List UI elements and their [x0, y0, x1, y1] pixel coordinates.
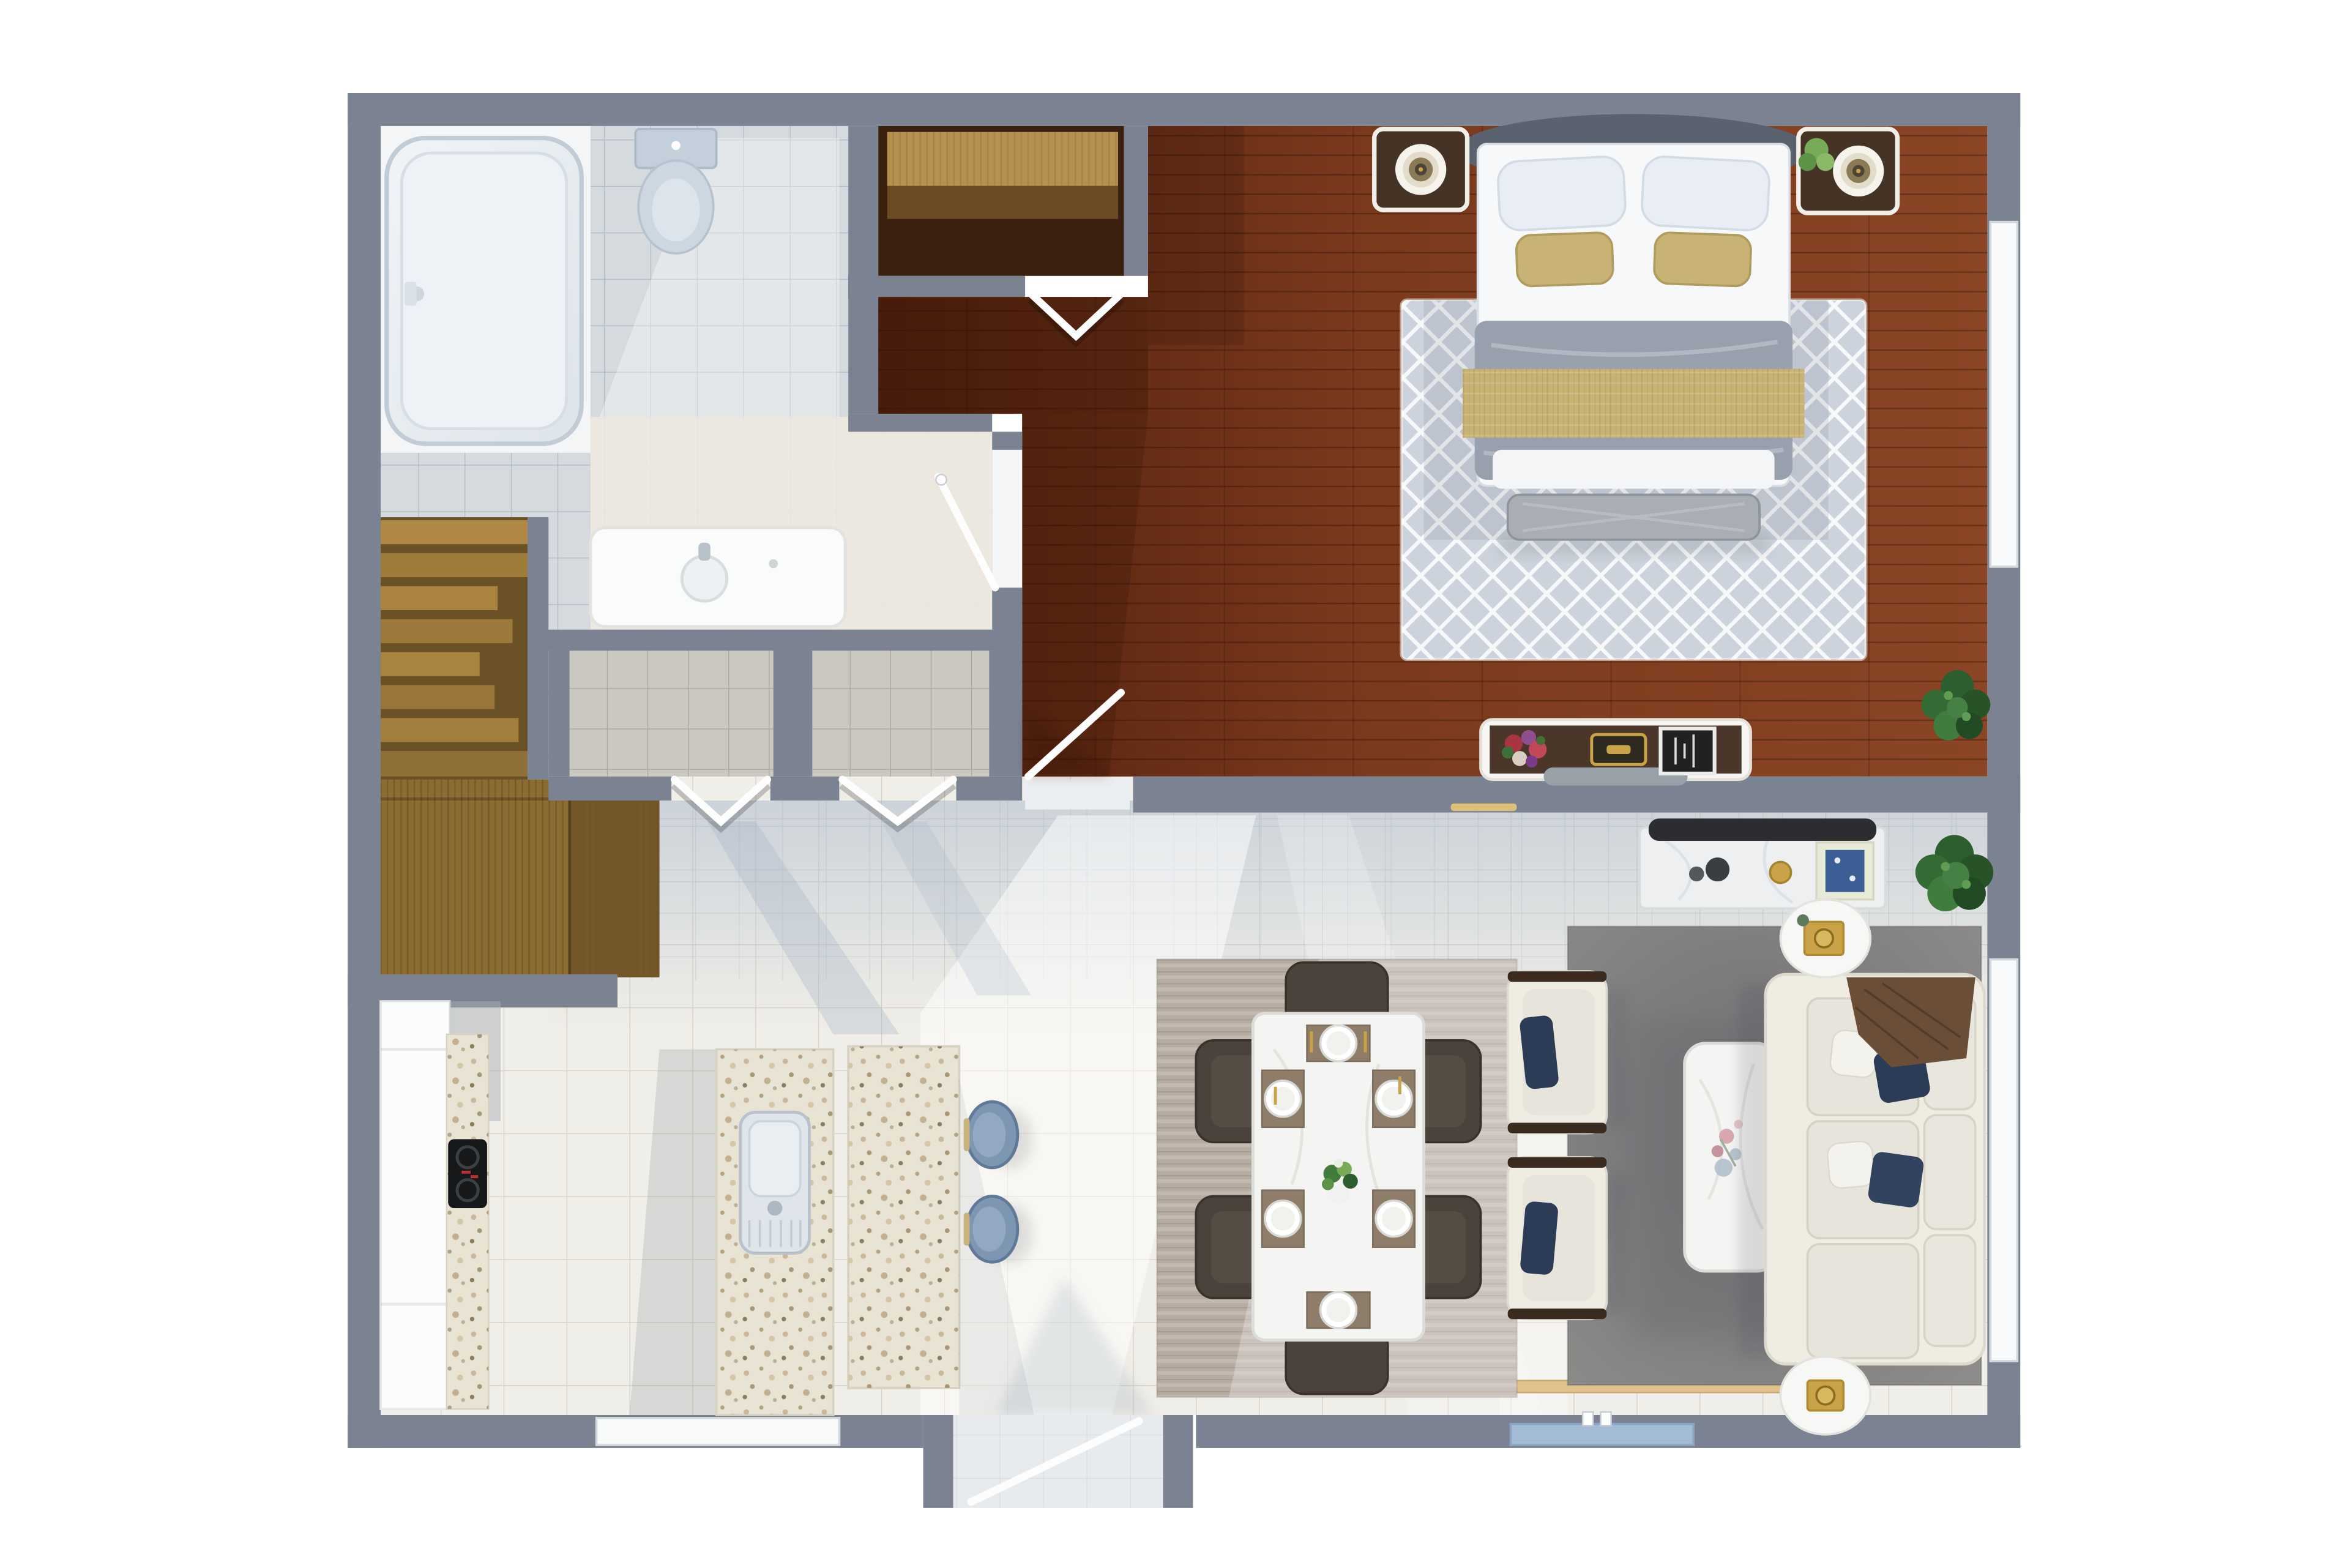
table-lamp: [1833, 146, 1884, 196]
storage-closet-right-floor: [812, 651, 989, 777]
side-table: [1780, 900, 1870, 977]
closet-floor: [878, 126, 1124, 276]
mattress-edge: [1493, 450, 1774, 489]
kitchen: [381, 1001, 1034, 1415]
toilet: [635, 129, 716, 253]
cooktop: [448, 1139, 487, 1208]
sprig: [1797, 914, 1809, 927]
tv: [1649, 818, 1876, 841]
art-frame: [1660, 728, 1714, 773]
navy-pillow: [1520, 1201, 1559, 1275]
wall-left: [348, 93, 381, 1448]
sofa: [1739, 974, 1985, 1364]
nightstand: [1375, 129, 1468, 210]
wall-alcove-divider: [774, 651, 813, 777]
wall-closet-left: [848, 126, 878, 414]
living-window: [1990, 960, 2017, 1361]
wall-alcove-right: [989, 651, 1022, 777]
side-table: [1780, 1357, 1870, 1435]
door-handle: [1601, 1412, 1611, 1425]
dining-area: [1157, 960, 1517, 1397]
wall-stub-a: [548, 777, 671, 801]
dining-table: [1253, 1014, 1423, 1340]
bathroom-door-handle: [936, 474, 946, 485]
bathtub: [387, 138, 581, 444]
armchair: [1508, 971, 1628, 1133]
wall-vestibule-bottom: [848, 414, 992, 431]
entry-stub-right: [1163, 1415, 1193, 1508]
vanity-sink: [591, 528, 845, 627]
wall-bathroom-bottom: [528, 630, 1022, 651]
entry-stub-left: [923, 1415, 953, 1508]
books: [1816, 843, 1873, 900]
pillow: [1497, 155, 1626, 231]
island-sink: [740, 1112, 810, 1253]
bedroom-window: [1990, 222, 2017, 567]
dresser: [1481, 720, 1751, 786]
stair-landing: [381, 780, 660, 977]
storage-closet-left-floor: [570, 651, 774, 777]
bowl: [1706, 857, 1729, 881]
accent-pillow: [1516, 233, 1614, 287]
kitchen-counter: [447, 1034, 489, 1409]
table-lamp: [1395, 144, 1446, 195]
kitchen-window: [597, 1418, 840, 1445]
wall-closet-bottom: [848, 276, 1025, 297]
foot-bench: [1499, 495, 1769, 554]
bathroom-door-opening: [992, 450, 1022, 588]
gold-dish: [1770, 862, 1791, 883]
white-pillow: [1827, 1140, 1876, 1189]
accent-pillow: [1654, 233, 1751, 287]
wall-stair-right: [528, 517, 548, 780]
wall-top: [348, 93, 2020, 126]
kitchen-island-sink: [630, 1049, 834, 1415]
wall-alcove-left: [548, 651, 569, 777]
pillow: [1641, 155, 1770, 231]
navy-pillow: [1867, 1151, 1925, 1209]
island-faucet: [767, 1201, 782, 1215]
bed: [1457, 114, 1810, 488]
gold-box: [1592, 734, 1646, 764]
light-strip: [1451, 804, 1517, 811]
wall-stub-b: [770, 777, 840, 801]
sink-faucet: [698, 543, 711, 561]
nightstand: [1799, 129, 1898, 213]
floor-plan: [0, 0, 2350, 1568]
wall-stub-c: [956, 777, 1022, 801]
door-handle: [1583, 1412, 1593, 1425]
bedroom-door-threshold: [1025, 780, 1130, 810]
bowl: [1689, 867, 1704, 881]
armchair: [1508, 1157, 1628, 1319]
entry: [953, 1415, 1163, 1508]
wall-closet-right: [1124, 126, 1148, 276]
